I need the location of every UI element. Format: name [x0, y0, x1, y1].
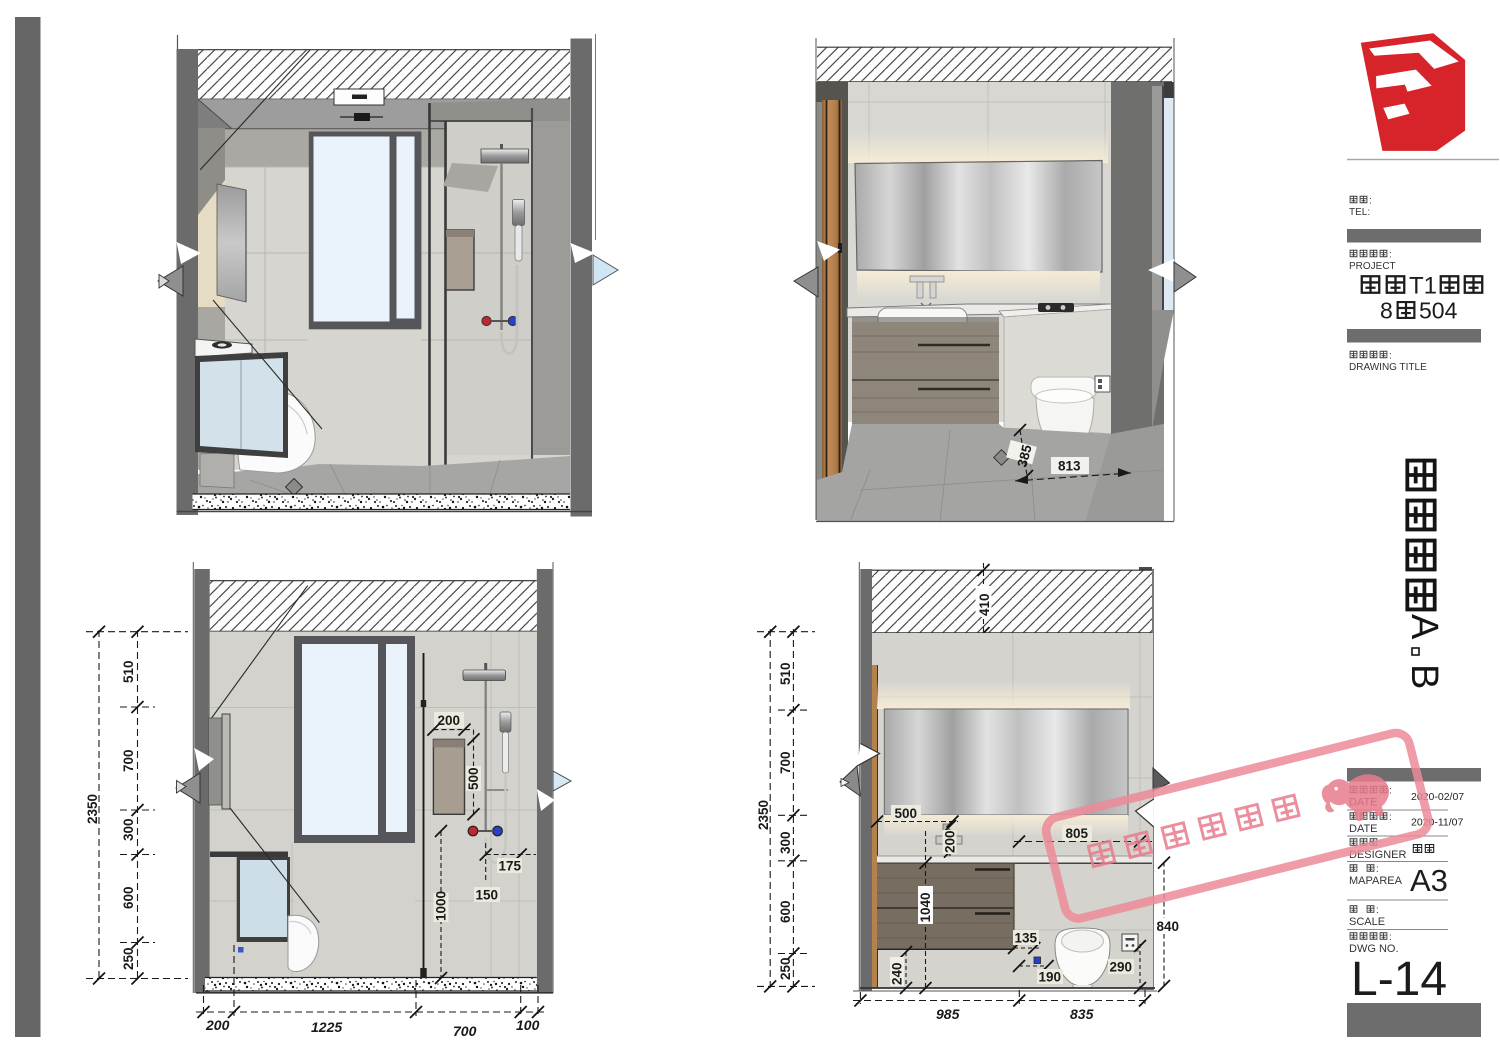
svg-text:2350: 2350: [85, 794, 100, 824]
svg-text:500: 500: [895, 806, 918, 821]
svg-text:813: 813: [1058, 459, 1081, 474]
svg-text:200: 200: [943, 830, 958, 853]
svg-text:1225: 1225: [311, 1019, 342, 1035]
svg-text:510: 510: [121, 660, 136, 683]
svg-text:805: 805: [1066, 826, 1089, 841]
svg-text:DATE: DATE: [1349, 823, 1378, 835]
svg-text:600: 600: [121, 886, 136, 909]
svg-text:A3: A3: [1410, 863, 1448, 898]
svg-text:300: 300: [778, 831, 793, 854]
svg-text::: :: [1369, 196, 1372, 207]
svg-text:700: 700: [778, 751, 793, 774]
svg-text:504: 504: [1419, 298, 1458, 324]
svg-text:T1: T1: [1409, 273, 1437, 300]
svg-text:1040: 1040: [918, 892, 933, 922]
svg-text:TEL:: TEL:: [1349, 207, 1370, 218]
svg-text:240: 240: [890, 962, 905, 985]
svg-text:510: 510: [778, 662, 793, 685]
svg-text:B: B: [1403, 664, 1445, 689]
svg-text:2020-11/07: 2020-11/07: [1411, 817, 1464, 829]
svg-text:410: 410: [977, 593, 992, 616]
svg-text:700: 700: [121, 749, 136, 772]
svg-text:840: 840: [1157, 919, 1180, 934]
svg-text:1000: 1000: [434, 891, 449, 921]
svg-text:250: 250: [778, 957, 793, 980]
svg-text:290: 290: [1110, 960, 1133, 975]
svg-text:A: A: [1403, 614, 1445, 640]
svg-text:PROJECT: PROJECT: [1349, 261, 1396, 272]
svg-text:135: 135: [1015, 931, 1038, 946]
svg-text:SCALE: SCALE: [1349, 916, 1385, 928]
svg-text:500: 500: [466, 767, 481, 790]
svg-text:985: 985: [936, 1006, 960, 1022]
svg-text:100: 100: [516, 1017, 540, 1033]
svg-text:250: 250: [121, 947, 136, 970]
svg-text:L-14: L-14: [1351, 953, 1447, 1006]
svg-text:175: 175: [499, 859, 522, 874]
svg-text:300: 300: [121, 818, 136, 841]
svg-text::: :: [1376, 905, 1379, 916]
svg-text:MAPAREA: MAPAREA: [1349, 875, 1403, 887]
svg-text:600: 600: [778, 900, 793, 923]
svg-text::: :: [1389, 250, 1392, 261]
svg-text::: :: [1389, 786, 1392, 797]
svg-text:835: 835: [1070, 1006, 1094, 1022]
svg-text:190: 190: [1039, 970, 1062, 985]
svg-text::: :: [1389, 932, 1392, 943]
svg-text:8: 8: [1380, 298, 1393, 324]
svg-text:700: 700: [453, 1023, 477, 1039]
svg-text:200: 200: [205, 1017, 230, 1033]
svg-text:150: 150: [476, 888, 499, 903]
svg-text::: :: [1389, 351, 1392, 362]
svg-text:DRAWING TITLE: DRAWING TITLE: [1349, 362, 1427, 373]
svg-text::: :: [1389, 812, 1392, 823]
svg-text:200: 200: [438, 713, 461, 728]
svg-text:2350: 2350: [756, 800, 771, 830]
svg-text::: :: [1376, 864, 1379, 875]
